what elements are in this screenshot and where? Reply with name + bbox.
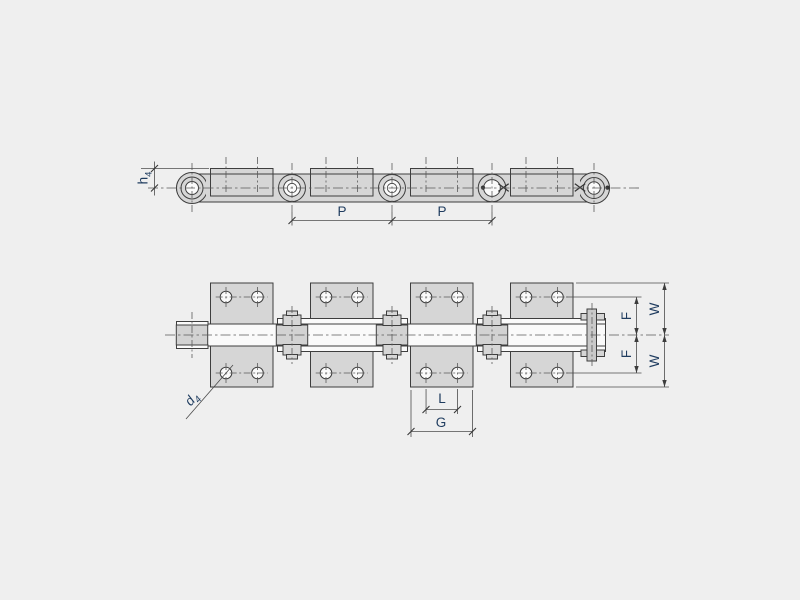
- dim-label-w-top: W: [648, 303, 662, 316]
- side-view: [141, 157, 640, 226]
- dim-label-f-bottom: F: [620, 350, 634, 358]
- dim-label-g: G: [436, 416, 447, 430]
- technical-drawing-canvas: P P h4 d4 L G F F W W: [0, 0, 800, 600]
- attachment-plate-side: [211, 169, 274, 197]
- dim-label-w-bottom: W: [648, 355, 662, 368]
- dimension-pitch: [289, 212, 496, 226]
- attachment-plate-side: [511, 169, 574, 197]
- chain-drawing: [0, 0, 800, 600]
- plan-view: [165, 283, 669, 437]
- dim-label-l: L: [438, 392, 446, 406]
- dim-label-p1: P: [337, 205, 346, 219]
- dim-label-p2: P: [437, 205, 446, 219]
- attachment-plate-side: [411, 169, 474, 197]
- attachment-plate-side: [311, 169, 374, 197]
- dim-label-f-top: F: [620, 312, 634, 320]
- dim-label-h4: h4: [137, 172, 154, 185]
